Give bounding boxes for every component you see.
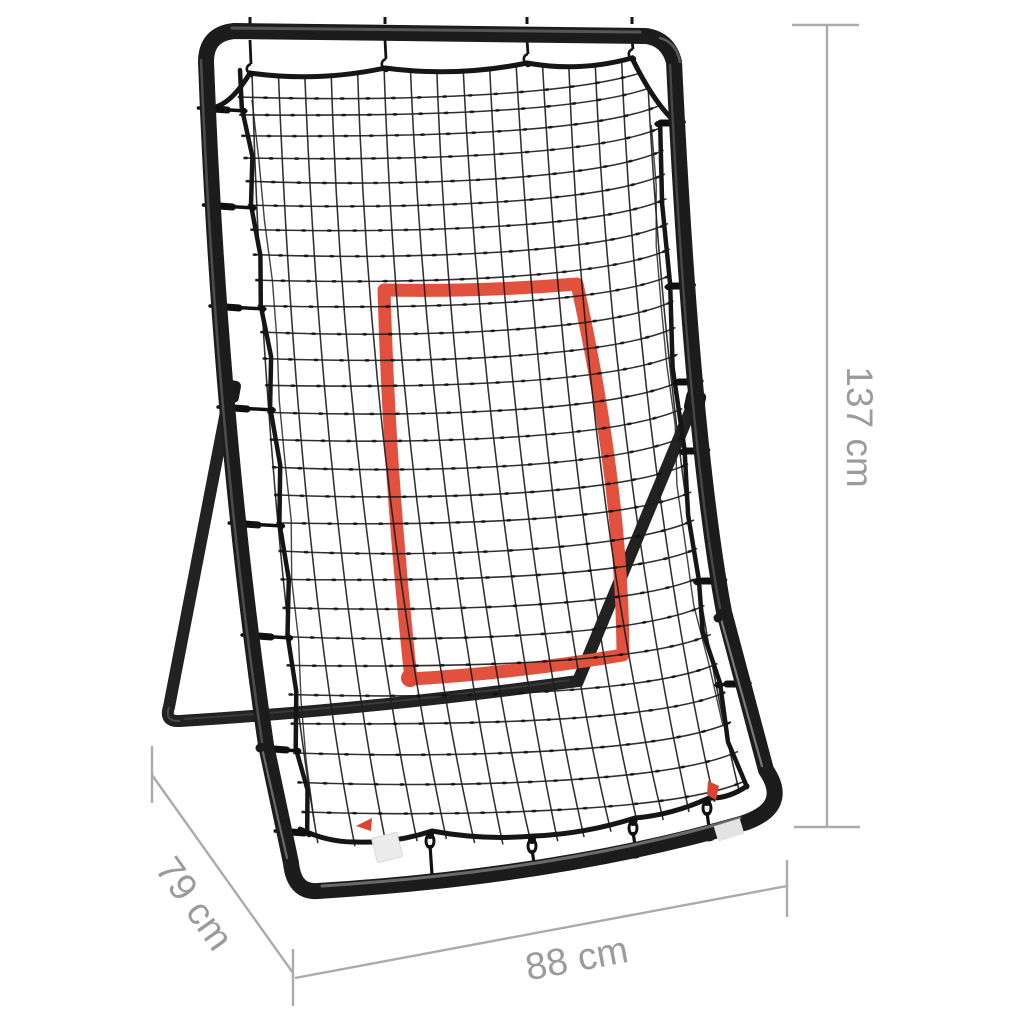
svg-text:137 cm: 137 cm [839,366,880,487]
